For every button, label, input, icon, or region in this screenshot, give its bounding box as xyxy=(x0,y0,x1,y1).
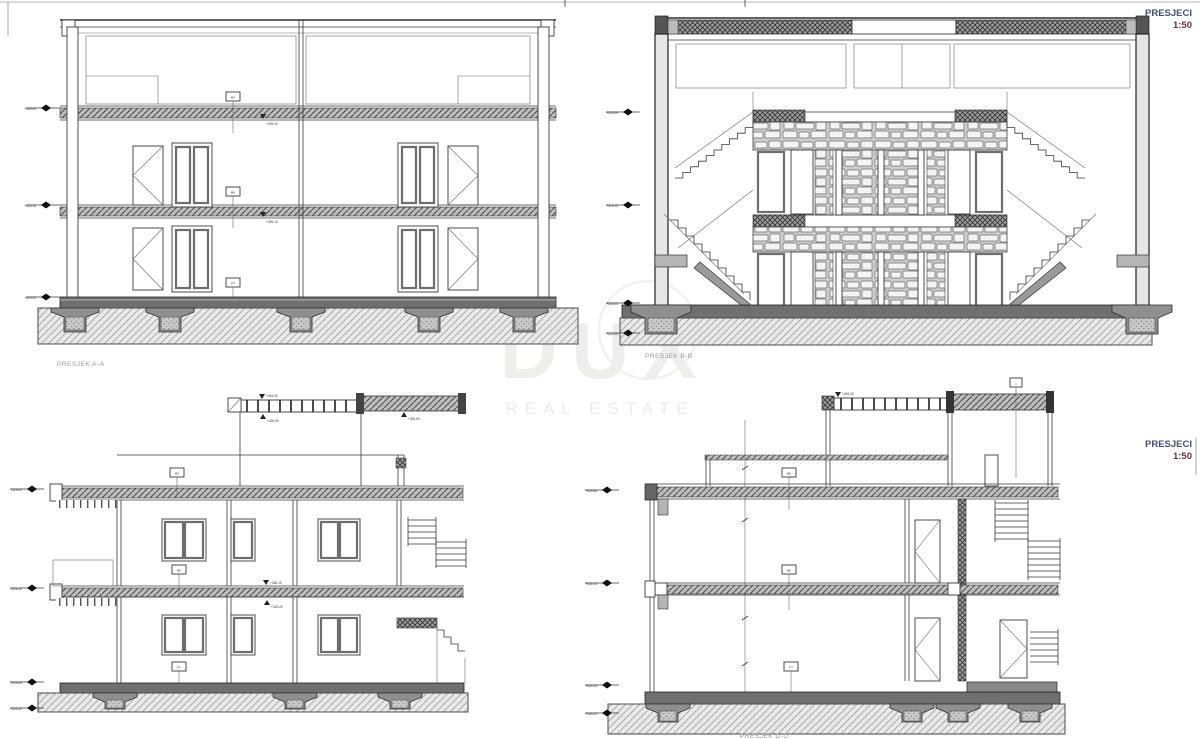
svg-text:+423.20: +423.20 xyxy=(10,707,22,711)
svg-text:+423.20: +423.20 xyxy=(585,712,597,716)
svg-text:+429.60: +429.60 xyxy=(585,489,597,493)
material-tag: PT xyxy=(784,662,798,692)
window-upper xyxy=(162,519,360,561)
elevation-marker: +426.10 xyxy=(585,580,619,587)
svg-text:PT: PT xyxy=(177,666,181,670)
svg-text:+426.10: +426.10 xyxy=(585,582,597,586)
stair-left xyxy=(655,112,753,312)
svg-text:+429.60: +429.60 xyxy=(267,419,279,423)
svg-text:+426.10: +426.10 xyxy=(24,204,36,208)
svg-text:+423.20: +423.20 xyxy=(10,681,22,685)
svg-text:+423.20: +423.20 xyxy=(585,684,597,688)
door-x-lower xyxy=(915,618,1027,681)
door-x-upper xyxy=(915,520,940,583)
svg-text:MK: MK xyxy=(231,191,236,195)
svg-text:+423.20: +423.20 xyxy=(271,605,283,609)
svg-text:+426.10: +426.10 xyxy=(270,581,282,585)
svg-text:PT: PT xyxy=(231,282,235,286)
svg-text:PT: PT xyxy=(789,666,793,670)
stone-wall-band xyxy=(753,122,1007,150)
section-c-drawing: +434.30 +429.60 +429.60 MK xyxy=(10,393,468,712)
elevation-marker: +429.60 xyxy=(585,487,619,494)
svg-text:+429.60: +429.60 xyxy=(10,488,22,492)
door-x-upper-left xyxy=(133,146,163,205)
svg-text:+423.20: +423.20 xyxy=(24,296,36,300)
door-x-lower-left xyxy=(133,228,163,290)
elevation-marker: +423.20 xyxy=(24,294,60,301)
svg-text:+434.30: +434.30 xyxy=(266,394,278,398)
section-b-drawing: +429.00 +426.10 +423.20 +423.20 PRESJEK … xyxy=(606,8,1192,360)
material-tag: PT xyxy=(226,278,240,297)
elevation-marker: +423.20 xyxy=(585,682,619,689)
sheet-scale-right: 1:50 xyxy=(1173,451,1192,462)
glazed-door-lower-left xyxy=(172,226,212,292)
section-b-label: PRESJEK B-B xyxy=(645,353,693,360)
svg-text:MK: MK xyxy=(787,569,792,573)
watermark-realestate: REAL ESTATE xyxy=(505,399,694,418)
sheet-scale-top: 1:50 xyxy=(1173,20,1192,31)
svg-text:+429.00: +429.00 xyxy=(606,111,618,115)
sheet-title-right: PRESJECI xyxy=(1145,439,1192,450)
elevation-marker: +426.10 xyxy=(10,585,44,592)
elevation-marker: +429.60 xyxy=(10,486,44,493)
glazed-door-lower-right xyxy=(398,226,438,292)
section-d-label: PRESJEK D-D xyxy=(740,733,788,739)
svg-text:MK: MK xyxy=(787,472,792,476)
svg-text:+429.00: +429.00 xyxy=(266,122,278,126)
stair-treads-upper xyxy=(408,517,466,568)
window-lower xyxy=(162,615,360,655)
architectural-sections-sheet: DUX REAL ESTATE xyxy=(0,0,1200,739)
stair-right xyxy=(1007,112,1149,312)
elevation-tag: +434.30 xyxy=(835,392,854,397)
door-x-upper-right xyxy=(448,146,478,205)
svg-text:+423.20: +423.20 xyxy=(606,302,618,306)
svg-text:+429.00: +429.00 xyxy=(24,107,36,111)
svg-text:MK: MK xyxy=(175,472,180,476)
svg-text:MK: MK xyxy=(231,96,236,100)
svg-text:MK: MK xyxy=(177,569,182,573)
glazed-door-upper-right xyxy=(398,143,438,207)
svg-text:+434.30: +434.30 xyxy=(842,392,854,396)
stone-wall-band xyxy=(753,227,1007,252)
glazed-door-upper-left xyxy=(172,143,212,207)
elevation-marker: +429.00 xyxy=(24,105,60,112)
elevation-marker: +423.20 xyxy=(10,679,44,686)
material-tag: 1 xyxy=(1010,378,1022,478)
elevation-marker: +426.10 xyxy=(24,202,60,209)
svg-text:+429.60: +429.60 xyxy=(408,417,420,421)
section-a-label: PRESJEK A-A xyxy=(57,361,105,368)
svg-text:+426.10: +426.10 xyxy=(266,220,278,224)
door-x-lower-right xyxy=(448,228,478,290)
svg-text:+426.10: +426.10 xyxy=(606,204,618,208)
svg-text:+423.20: +423.20 xyxy=(606,332,618,336)
sheet-title-top: PRESJECI xyxy=(1145,8,1192,19)
elevation-marker: +426.10 xyxy=(606,202,640,209)
elevation-marker: +429.00 xyxy=(606,109,640,116)
svg-text:+426.10: +426.10 xyxy=(10,587,22,591)
section-a-drawing: MK MK PT +429.00 +426.10 xyxy=(24,20,578,368)
section-d-drawing: +434.30 1 xyxy=(585,378,1192,739)
dimension-line xyxy=(742,420,748,693)
stair-lower-right xyxy=(397,618,465,683)
